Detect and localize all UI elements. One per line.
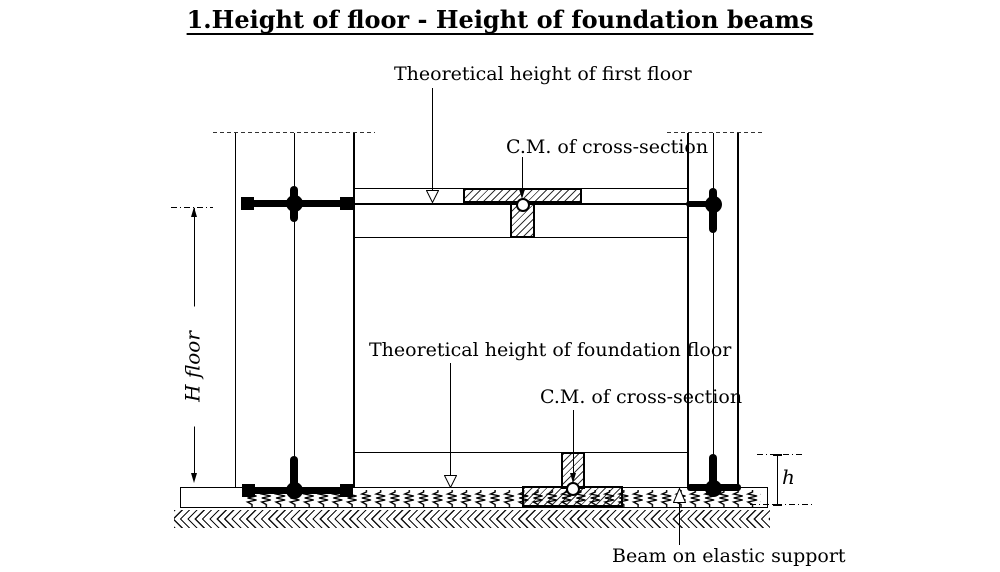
foundation-top-line [354, 452, 688, 453]
leader-foundation-floor-height [450, 363, 451, 476]
arrow-cm-foundation [570, 473, 576, 483]
label-h: h [782, 466, 795, 488]
ground-hatch-upper [174, 510, 770, 519]
label-foundation-floor-height: Theoretical height of foundation floor [369, 340, 731, 361]
leader-cm-first [522, 157, 523, 191]
label-cm-first: C.M. of cross-section [506, 137, 708, 158]
ground-hatch-lower [174, 519, 770, 528]
arrow-foundation-floor-height [444, 475, 457, 488]
node-ff-left-joint-circle [286, 195, 303, 212]
label-first-floor-height: Theoretical height of first floor [394, 64, 692, 85]
node-fd-left-end-square-right [340, 484, 353, 497]
dim-hfloor-arrow-top [191, 207, 197, 217]
cut-line-right [667, 132, 762, 133]
dim-h-tick-top [773, 454, 782, 456]
right-column-centerline [713, 133, 714, 488]
node-fd-right-joint-circle [705, 480, 722, 497]
diagram-canvas: 1.Height of floor - Height of foundation… [0, 0, 1000, 572]
node-ff-right-joint-circle [705, 196, 722, 213]
node-fd-left-joint-circle [286, 482, 303, 499]
arrow-beam-support [673, 488, 686, 503]
dim-h-line [777, 455, 778, 505]
label-h-floor: H floor [182, 307, 207, 427]
node-ff-left-end-square-right [340, 197, 353, 210]
label-beam-support: Beam on elastic support [612, 546, 846, 567]
leader-first-floor-height [432, 88, 433, 191]
left-column-inner-edge [353, 133, 355, 488]
left-column-outer-edge [235, 133, 237, 488]
node-ff-left-end-square-left [241, 197, 254, 210]
dim-hfloor-arrow-bottom [191, 473, 197, 483]
right-column-inner-edge [687, 133, 689, 488]
label-cm-foundation: C.M. of cross-section [540, 387, 742, 408]
right-column-outer-edge [737, 133, 739, 488]
diagram-title: 1.Height of floor - Height of foundation… [0, 5, 1000, 34]
leader-beam-support [679, 503, 680, 545]
leader-cm-foundation [573, 410, 574, 475]
arrow-first-floor-height [426, 190, 439, 203]
foundation-cm-marker [566, 482, 580, 496]
first-floor-cm-marker [516, 198, 530, 212]
node-fd-left-end-square-left [242, 484, 255, 497]
dim-h-tick-bottom [773, 504, 782, 506]
arrow-cm-first [519, 189, 525, 199]
